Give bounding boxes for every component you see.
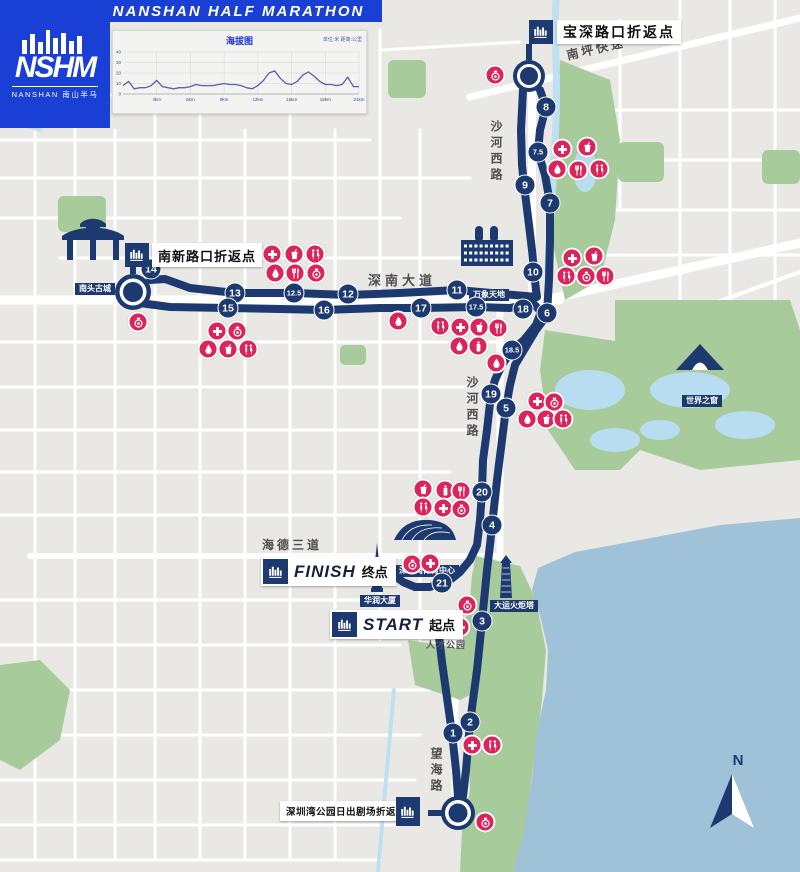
landmark-label: 南头古城 — [75, 283, 115, 295]
km-marker-16: 16 — [314, 300, 335, 321]
road-label-shahe-north: 沙河西路 — [488, 120, 505, 184]
km-marker-8: 8 — [536, 97, 557, 118]
torch-icon — [494, 554, 518, 598]
km-marker-17: 17 — [411, 298, 432, 319]
station-sponge-icon — [517, 409, 538, 430]
km-marker-12: 12 — [338, 284, 359, 305]
station-sponge-icon — [547, 159, 568, 180]
km-marker-4: 4 — [482, 515, 503, 536]
landmark-label: 深圳湾体育中心 — [395, 565, 459, 577]
major-roads — [0, 18, 800, 815]
svg-text:40: 40 — [116, 50, 122, 55]
station-sponge-icon — [265, 263, 286, 284]
station-toilet-icon — [430, 316, 451, 337]
chart-note: 单位:米 距离:公里 — [323, 36, 362, 43]
road-label-haide: 海德三道 — [262, 536, 322, 553]
nshm-badge-icon — [332, 612, 357, 637]
station-medical-icon — [462, 735, 483, 756]
svg-text:9km: 9km — [220, 97, 229, 102]
route-layer — [0, 0, 800, 872]
km-marker-2: 2 — [460, 712, 481, 733]
km-marker-10: 10 — [523, 262, 544, 283]
km-marker-5: 5 — [496, 398, 517, 419]
street-grid — [0, 0, 800, 860]
elevation-plot: 0102030403km6km9km12km15km18km21km — [113, 46, 366, 112]
station-medical-icon — [450, 317, 471, 338]
gate-icon — [60, 216, 126, 260]
station-water-icon — [468, 336, 489, 357]
turnaround-circles — [115, 60, 545, 830]
landmark-label: 万象天地 — [469, 289, 509, 301]
km-marker-15: 15 — [218, 298, 239, 319]
building-icon — [458, 222, 516, 266]
station-sponge-icon — [486, 353, 507, 374]
station-toilet-icon — [238, 339, 259, 360]
station-food-icon — [488, 318, 509, 339]
station-camera-icon — [485, 65, 506, 86]
finish-text-cn: 终点 — [362, 562, 388, 581]
nshm-badge-icon — [529, 20, 553, 44]
turnaround-label-nanxin: 南新路口折返点 — [152, 243, 262, 267]
km-marker-13: 13 — [225, 283, 246, 304]
elevation-chart: 海拔图 单位:米 距离:公里 0102030403km6km9km12km15k… — [112, 30, 367, 114]
svg-text:12km: 12km — [252, 97, 263, 102]
logo-acronym: NSHM — [15, 54, 95, 82]
station-medical-icon — [527, 391, 548, 412]
station-water-icon — [435, 480, 456, 501]
km-marker-layer: 12345677.58910111212.5131415161717.51818… — [0, 0, 800, 872]
station-layer — [0, 0, 800, 872]
skyline-icon — [336, 616, 354, 634]
nshm-badge-icon — [396, 797, 420, 826]
station-drink-icon — [469, 317, 490, 338]
route-map: SHENZHEN NANSHAN HALF MARATHON NSHM NANS… — [0, 0, 800, 872]
landmark-label: 世界之窗 — [682, 395, 722, 407]
skyline-icon — [128, 246, 146, 264]
landmark-label-cr-tower: 华润大厦 — [360, 595, 400, 607]
landmark-nantou: 南头古城 — [60, 216, 130, 296]
road-label-shennan: 深南大道 — [368, 270, 436, 289]
skyline-icon — [399, 803, 417, 821]
km-marker-1: 1 — [443, 723, 464, 744]
svg-text:0: 0 — [118, 92, 121, 97]
km-marker-7: 7 — [540, 193, 561, 214]
svg-text:10: 10 — [116, 81, 122, 86]
turnaround-circle-sunrise — [441, 796, 475, 830]
basemap — [0, 0, 800, 872]
km-marker-18.5: 18.5 — [502, 340, 523, 361]
km-marker-19: 19 — [481, 384, 502, 405]
station-sponge-icon — [198, 339, 219, 360]
parks — [0, 60, 800, 872]
station-medical-icon — [262, 244, 283, 265]
compass-n-label: N — [706, 752, 770, 769]
station-camera-icon — [128, 312, 149, 333]
landmark-mixc: 万象天地 — [458, 222, 520, 302]
road-label-shahe-south: 沙河西路 — [464, 376, 481, 440]
event-logo: NSHM NANSHAN 南山半马 — [0, 0, 110, 128]
station-toilet-icon — [413, 497, 434, 518]
km-marker-7.5: 7.5 — [528, 142, 549, 163]
station-food-icon — [595, 266, 616, 287]
landmark-torch-tower — [494, 554, 520, 598]
lakes — [548, 148, 775, 452]
start-text-cn: 起点 — [429, 615, 455, 634]
nshm-badge-icon — [263, 559, 288, 584]
station-drink-icon — [536, 409, 557, 430]
station-medical-icon — [207, 321, 228, 342]
skyline-icon — [267, 563, 285, 581]
svg-text:15km: 15km — [286, 97, 297, 102]
logo-name: NANSHAN 南山半马 — [12, 86, 99, 100]
finish-label: FINISH 终点 — [261, 557, 396, 586]
station-toilet-icon — [556, 266, 577, 287]
station-drink-icon — [284, 244, 305, 265]
svg-text:20: 20 — [116, 71, 122, 76]
station-camera-icon — [544, 392, 565, 413]
stadium-icon — [390, 516, 460, 542]
svg-text:3km: 3km — [152, 97, 161, 102]
route-line — [140, 90, 550, 797]
km-marker-12.5: 12.5 — [284, 283, 305, 304]
nshm-badge-icon — [125, 243, 149, 267]
station-medical-icon — [562, 248, 583, 269]
svg-text:6km: 6km — [186, 97, 195, 102]
finish-text-en: FINISH — [294, 562, 356, 582]
station-camera-icon — [475, 812, 496, 833]
landmark-sports-center: 深圳湾体育中心 — [390, 516, 464, 578]
station-sponge-icon — [388, 311, 409, 332]
turnaround-label-sunrise: 深圳湾公园日出剧场折返点 — [280, 801, 412, 821]
km-marker-3: 3 — [472, 611, 493, 632]
start-label: START 起点 — [330, 610, 463, 639]
station-toilet-icon — [589, 159, 610, 180]
km-marker-6: 6 — [537, 303, 558, 324]
station-drink-icon — [413, 479, 434, 500]
svg-text:18km: 18km — [320, 97, 331, 102]
station-toilet-icon — [482, 735, 503, 756]
compass-arrow-icon — [706, 770, 758, 832]
landmark-window-of-world: 世界之窗 — [674, 342, 730, 408]
station-drink-icon — [218, 339, 239, 360]
km-marker-9: 9 — [515, 175, 536, 196]
station-food-icon — [285, 263, 306, 284]
landmark-label-torch-tower: 大运火炬塔 — [490, 600, 538, 612]
station-camera-icon — [227, 321, 248, 342]
park-label-talent: 人才公园 — [426, 638, 466, 651]
km-marker-20: 20 — [472, 482, 493, 503]
compass: N — [706, 752, 770, 832]
turnaround-circle-baoshen — [513, 60, 545, 92]
turnaround-label-baoshen: 宝深路口折返点 — [557, 20, 681, 44]
start-text-en: START — [363, 615, 423, 635]
station-toilet-icon — [305, 244, 326, 265]
station-medical-icon — [552, 139, 573, 160]
svg-text:30: 30 — [116, 60, 122, 65]
station-sponge-icon — [449, 336, 470, 357]
station-drink-icon — [584, 246, 605, 267]
station-food-icon — [451, 481, 472, 502]
station-camera-icon — [576, 266, 597, 287]
station-camera-icon — [306, 263, 327, 284]
svg-text:21km: 21km — [353, 97, 364, 102]
pyramid-icon — [674, 342, 726, 372]
station-food-icon — [568, 160, 589, 181]
skyline-icon — [532, 23, 550, 41]
station-drink-icon — [577, 137, 598, 158]
road-label-wanghai: 望海路 — [428, 747, 445, 795]
station-toilet-icon — [553, 409, 574, 430]
